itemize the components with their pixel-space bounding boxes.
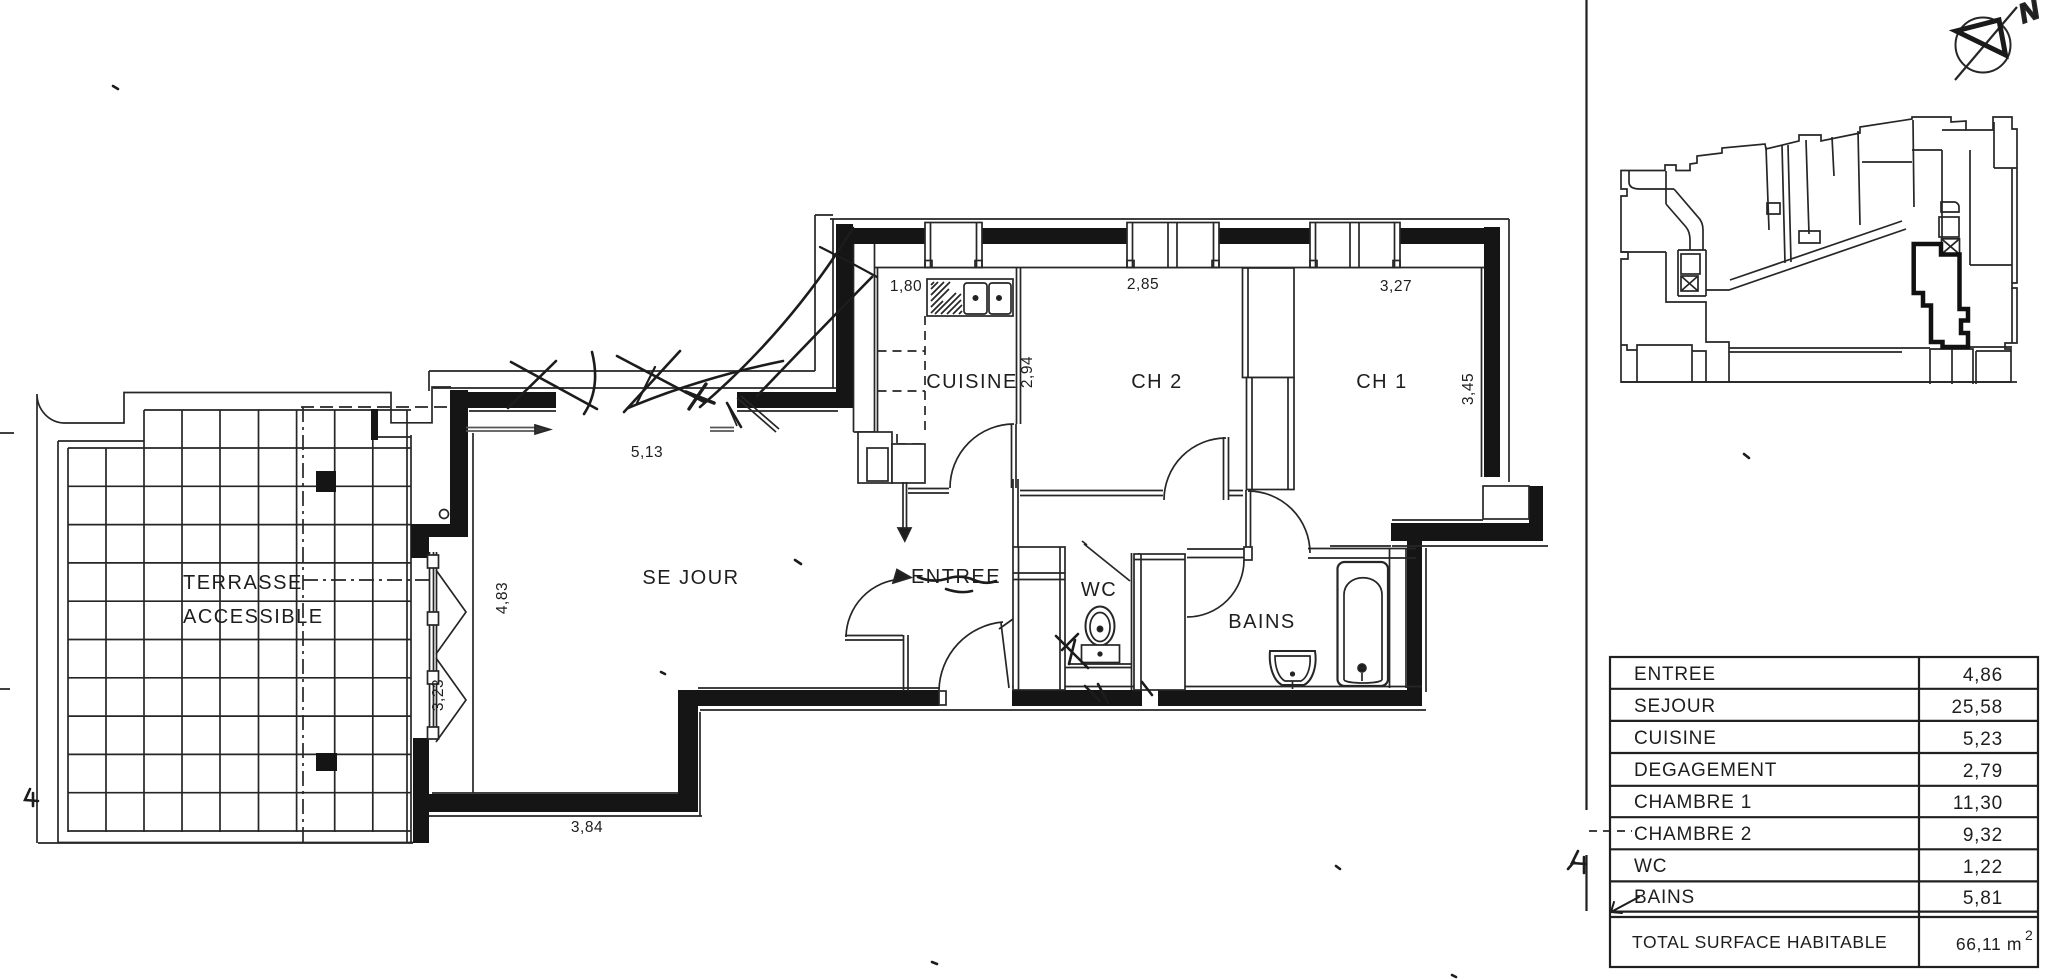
svg-text:1,80: 1,80 [890, 278, 922, 295]
svg-text:CHAMBRE 2: CHAMBRE 2 [1634, 824, 1752, 845]
svg-text:CUISINE: CUISINE [1634, 728, 1717, 749]
svg-text:ACCESSIBLE: ACCESSIBLE [183, 606, 324, 628]
svg-text:3,27: 3,27 [1380, 278, 1412, 295]
svg-text:SE JOUR: SE JOUR [642, 567, 739, 589]
svg-text:2,79: 2,79 [1963, 761, 2003, 782]
svg-text:5,13: 5,13 [631, 444, 663, 461]
svg-text:TERRASSE: TERRASSE [183, 572, 303, 594]
svg-text:CH 2: CH 2 [1131, 371, 1183, 393]
svg-text:DEGAGEMENT: DEGAGEMENT [1634, 760, 1777, 781]
svg-text:BAINS: BAINS [1228, 611, 1296, 633]
svg-text:2,94: 2,94 [1019, 356, 1036, 388]
svg-text:2,85: 2,85 [1127, 276, 1159, 293]
svg-text:3,45: 3,45 [1460, 373, 1477, 405]
svg-text:5,81: 5,81 [1963, 888, 2003, 909]
svg-text:9,32: 9,32 [1963, 825, 2003, 846]
svg-text:11,30: 11,30 [1953, 793, 2003, 814]
svg-text:3,84: 3,84 [571, 819, 603, 836]
svg-text:3,23: 3,23 [430, 679, 447, 711]
svg-text:WC: WC [1634, 856, 1667, 877]
svg-text:2: 2 [2025, 927, 2033, 943]
svg-text:25,58: 25,58 [1951, 697, 2003, 718]
svg-text:5,23: 5,23 [1963, 729, 2003, 750]
svg-text:CUISINE: CUISINE [926, 371, 1018, 393]
svg-text:TOTAL SURFACE HABITABLE: TOTAL SURFACE HABITABLE [1632, 932, 1887, 952]
svg-text:4,83: 4,83 [494, 582, 511, 614]
svg-text:4,86: 4,86 [1963, 665, 2003, 686]
svg-text:SEJOUR: SEJOUR [1634, 696, 1716, 717]
svg-text:ENTREE: ENTREE [1634, 664, 1716, 685]
svg-text:CH 1: CH 1 [1356, 371, 1408, 393]
svg-text:66,11 m: 66,11 m [1956, 934, 2022, 954]
svg-text:BAINS: BAINS [1634, 887, 1695, 908]
svg-text:CHAMBRE 1: CHAMBRE 1 [1634, 792, 1752, 813]
svg-text:1,22: 1,22 [1963, 857, 2003, 878]
svg-text:WC: WC [1081, 579, 1117, 601]
